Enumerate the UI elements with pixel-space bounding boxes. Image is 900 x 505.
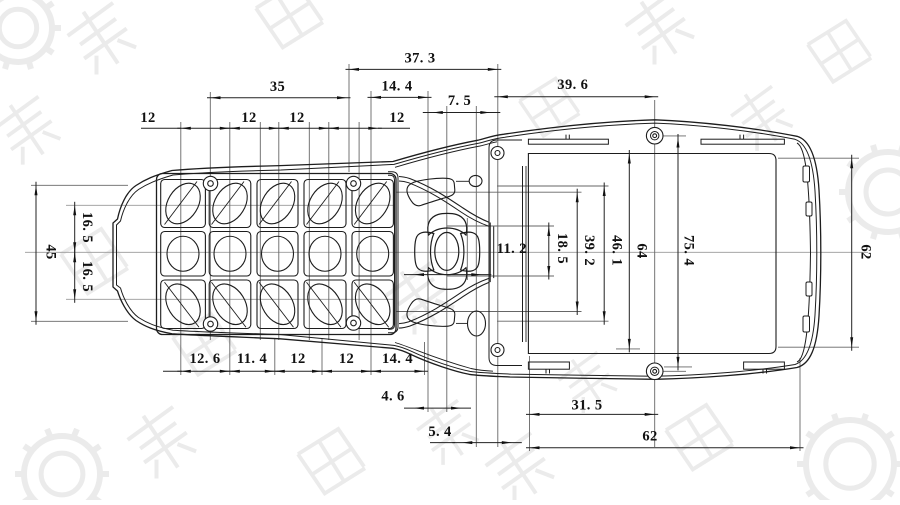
- svg-text:16. 5: 16. 5: [79, 212, 95, 243]
- svg-text:11. 4: 11. 4: [237, 351, 267, 367]
- svg-text:16. 5: 16. 5: [79, 261, 95, 292]
- svg-text:12: 12: [339, 351, 354, 367]
- svg-text:14. 4: 14. 4: [382, 79, 413, 95]
- svg-text:12: 12: [289, 110, 304, 126]
- svg-text:35: 35: [270, 79, 285, 95]
- svg-text:39. 6: 39. 6: [557, 77, 588, 93]
- svg-text:12. 6: 12. 6: [190, 351, 221, 367]
- svg-text:12: 12: [241, 110, 256, 126]
- svg-text:62: 62: [857, 244, 873, 259]
- svg-text:64: 64: [633, 243, 649, 258]
- svg-text:75. 4: 75. 4: [680, 235, 696, 266]
- svg-text:62: 62: [642, 429, 657, 445]
- svg-text:46. 1: 46. 1: [608, 235, 624, 266]
- svg-text:11. 2: 11. 2: [497, 241, 527, 257]
- svg-text:5. 4: 5. 4: [428, 424, 451, 440]
- svg-text:31. 5: 31. 5: [572, 398, 603, 414]
- svg-text:37. 3: 37. 3: [405, 51, 436, 67]
- svg-text:18. 5: 18. 5: [554, 233, 570, 264]
- svg-text:12: 12: [140, 110, 155, 126]
- svg-text:39. 2: 39. 2: [581, 235, 597, 266]
- svg-text:12: 12: [290, 351, 305, 367]
- svg-text:4. 6: 4. 6: [381, 389, 404, 405]
- svg-text:7. 5: 7. 5: [448, 93, 471, 109]
- svg-text:12: 12: [389, 110, 404, 126]
- svg-text:14. 4: 14. 4: [382, 351, 413, 367]
- svg-text:45: 45: [42, 244, 58, 259]
